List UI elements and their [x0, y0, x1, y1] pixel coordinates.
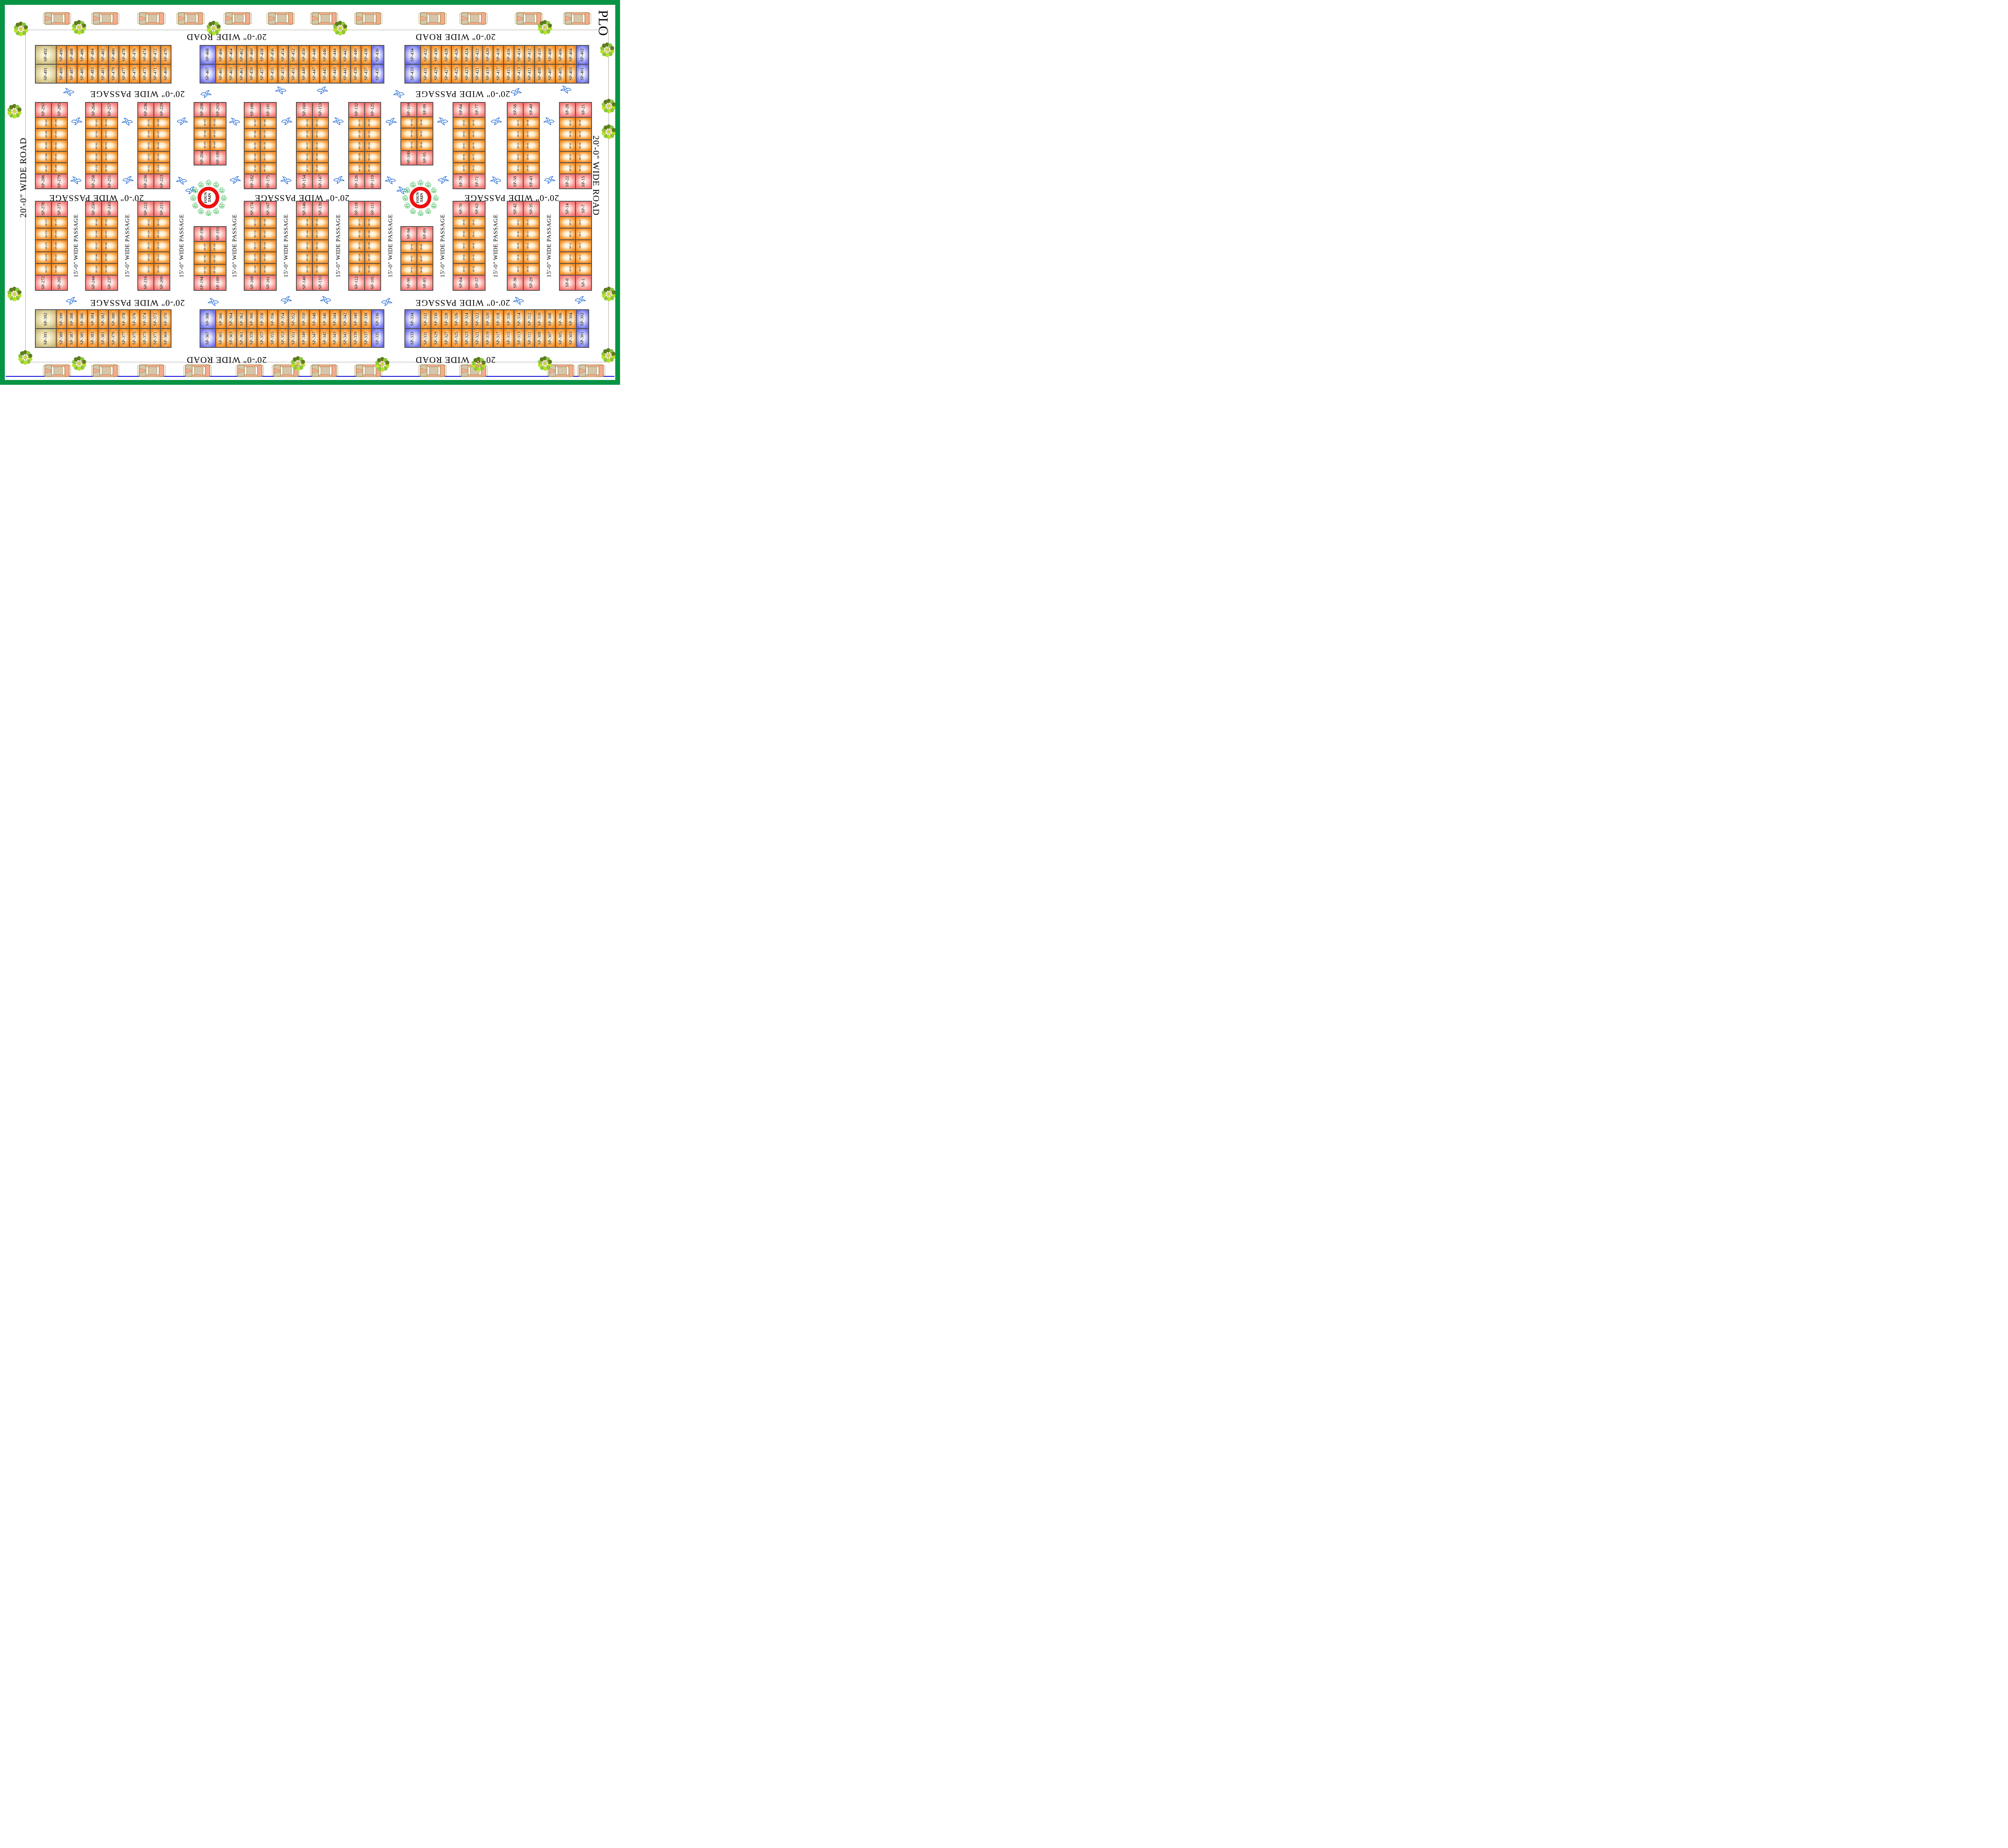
plot-column: SP-370SP-369: [161, 310, 171, 347]
plot-label: SP-150: [316, 142, 318, 149]
plot-column: SP-306SP-305: [555, 310, 566, 347]
plot-cell: SP-355: [267, 329, 278, 347]
plot-cell: SP-72: [469, 163, 485, 174]
plot-cell: SP-440: [351, 45, 361, 64]
fountain-foliage-icon: [192, 202, 198, 208]
plot-label: SP-365: [218, 331, 223, 344]
plot-label: SP-3: [579, 255, 582, 260]
plot-cell: SP-231: [138, 163, 154, 174]
plot-cell: SP-479: [108, 64, 119, 83]
bird-icon: [437, 117, 449, 125]
plot-label: SP-2: [579, 267, 582, 272]
plot-label: SP-56: [513, 104, 518, 115]
plot-label: SP-17: [579, 154, 582, 160]
plot-label: SP-127: [359, 165, 361, 172]
plot-cell: SP-337: [361, 329, 371, 347]
plot-column: SP-334SP-333: [405, 310, 420, 347]
plot-strip: SP-70SP-69SP-68SP-67SP-66SP-65SP-64SP-63…: [453, 201, 486, 291]
passage-label-vertical: 15'-0" WIDE PASSAGE: [124, 214, 131, 278]
plot-cell: SP-430: [431, 45, 441, 64]
plot-cell: SP-365: [216, 329, 226, 347]
plot-cell: SP-230: [138, 174, 154, 189]
plot-label: SP-68: [463, 231, 465, 237]
plot-label: SP-55: [517, 120, 520, 126]
plot-label: SP-435: [375, 67, 380, 80]
plot-cell: SP-335: [371, 329, 384, 347]
plot-cell: SP-206: [194, 128, 210, 139]
plot-label: SP-434: [410, 48, 415, 61]
plot-label: SP-217: [148, 266, 150, 273]
plot-cell: SP-70: [453, 201, 469, 216]
plot-cell: SP-203: [210, 102, 226, 117]
plot-label: SP-332: [423, 312, 428, 325]
plot-block: SP-334SP-333SP-332SP-331SP-330SP-329SP-3…: [404, 309, 589, 348]
plot-column: SP-236SP-235SP-234SP-233SP-232SP-231SP-2…: [138, 102, 154, 189]
plot-strip: SP-236SP-235SP-234SP-233SP-232SP-231SP-2…: [137, 102, 170, 189]
plot-cell: SP-453: [278, 64, 288, 83]
plot-cell: SP-51: [507, 163, 523, 174]
plot-column: SP-181SP-180SP-179SP-178SP-177SP-176SP-1…: [260, 102, 276, 189]
plot-column: SP-344SP-343: [330, 310, 340, 347]
plot-cell: SP-352: [288, 310, 299, 329]
plot-cell: SP-458: [257, 45, 267, 64]
plot-cell: SP-371: [150, 329, 161, 347]
plot-cell: SP-425: [451, 64, 462, 83]
tree-icon: [6, 286, 22, 302]
plot-cell: SP-112: [349, 275, 365, 290]
plot-cell: SP-344: [330, 310, 340, 329]
plot-cell: SP-229: [154, 102, 170, 117]
plot-column: SP-84SP-83SP-82SP-81SP-80SP-79SP-78: [453, 102, 469, 189]
plot-cell: SP-210: [154, 263, 170, 275]
plot-label: SP-20: [579, 120, 582, 126]
plot-label: SP-21: [582, 104, 586, 115]
plot-label: SP-173: [254, 219, 257, 226]
plot-cell: SP-475: [129, 64, 140, 83]
plot-cell: SP-34: [523, 216, 539, 228]
car-icon: [577, 364, 605, 378]
plot-label: SP-184: [254, 153, 257, 161]
plot-column: SP-257SP-256SP-255SP-254SP-253SP-252SP-2…: [102, 102, 118, 189]
plot-cell: SP-292: [35, 102, 51, 117]
plot-label: SP-455: [271, 67, 275, 80]
plot-cell: SP-172: [244, 228, 260, 240]
plot-cell: SP-96: [417, 139, 433, 151]
tree-icon: [332, 20, 348, 36]
plot-cell: SP-14: [559, 201, 575, 216]
plot-column: SP-458SP-457: [257, 45, 267, 83]
fountain-foliage-icon: [410, 181, 416, 188]
passage-label-vertical: 15'-0" WIDE PASSAGE: [546, 214, 553, 278]
plot-cell: SP-26: [559, 129, 575, 140]
passage-label-vertical: 15'-0" WIDE PASSAGE: [388, 214, 394, 278]
plot-label: SP-187: [254, 119, 257, 127]
plot-column: SP-346SP-345: [320, 310, 330, 347]
plot-label: SP-94: [407, 229, 411, 239]
plot-cell: SP-248: [86, 228, 102, 240]
plot-label: SP-308: [548, 312, 553, 325]
plot-cell: SP-214: [154, 216, 170, 228]
plot-label: SP-446: [322, 48, 327, 61]
plot-cell: SP-478: [119, 45, 129, 64]
plot-strip: SP-278SP-277SP-276SP-275SP-274SP-273SP-2…: [35, 201, 68, 291]
plot-cell: SP-259: [86, 163, 102, 174]
plot-column: SP-215SP-214SP-213SP-212SP-211SP-210SP-2…: [154, 201, 170, 290]
plot-label: SP-482: [101, 48, 106, 61]
plot-cell: SP-78: [453, 174, 469, 189]
plot-label: SP-124: [368, 119, 371, 127]
plot-cell: SP-429: [431, 64, 441, 83]
plot-label: SP-458: [260, 48, 265, 61]
plot-cell: SP-319: [483, 329, 493, 347]
plot-cell: SP-144: [296, 228, 312, 240]
plot-column: SP-352SP-351: [288, 310, 299, 347]
plot-label: SP-125: [371, 103, 375, 116]
plot-label: SP-170: [254, 254, 257, 261]
plot-cell: SP-225: [154, 151, 170, 163]
plot-label: SP-474: [143, 48, 147, 61]
plot-label: SP-431: [423, 67, 428, 80]
plot-cell: SP-250: [86, 201, 102, 216]
fountain-label: FOUN TAIN: [416, 192, 424, 203]
plot-cell: SP-281: [51, 151, 67, 163]
plot-cell: SP-368: [200, 310, 216, 329]
plot-cell: SP-127: [349, 163, 365, 174]
plot-column: SP-250SP-249SP-248SP-247SP-246SP-245SP-2…: [86, 201, 102, 290]
plot-cell: SP-339: [351, 329, 361, 347]
plot-cell: SP-148: [312, 163, 329, 174]
plot-cell: SP-147: [312, 174, 329, 189]
plot-cell: SP-23: [559, 163, 575, 174]
plot-column: SP-418SP-417: [493, 45, 504, 83]
plot-label: SP-179: [264, 131, 266, 138]
plot-cell: SP-484: [88, 45, 98, 64]
fountain-foliage-icon: [402, 194, 408, 201]
plot-label: SP-418: [496, 48, 500, 61]
plot-cell: SP-85: [417, 276, 433, 290]
plot-label: SP-116: [359, 231, 361, 237]
plot-block: SP-392SP-391SP-390SP-389SP-388SP-387SP-3…: [35, 309, 171, 348]
plot-label: SP-128: [359, 153, 361, 161]
plot-cell: SP-438: [361, 45, 371, 64]
plot-cell: SP-199: [210, 151, 226, 165]
plot-cell: SP-185: [244, 140, 260, 151]
plot-column: SP-63SP-62SP-61SP-60SP-59SP-58SP-57: [469, 201, 485, 290]
plot-cell: SP-54: [507, 129, 523, 140]
plot-label: SP-235: [148, 119, 150, 127]
plot-label: SP-99: [423, 104, 427, 115]
plot-cell: SP-447: [309, 64, 320, 83]
plot-label: SP-253: [105, 153, 108, 161]
passage-label: 20'-0" WIDE PASSAGE: [415, 89, 510, 99]
plot-cell: SP-379: [108, 329, 119, 347]
plot-strip: SP-94SP-93SP-92SP-91SP-90SP-89SP-88SP-87…: [400, 226, 433, 291]
plot-label: SP-272: [41, 276, 46, 289]
plot-label: SP-409: [538, 67, 542, 80]
plot-cell: SP-275: [35, 240, 51, 251]
bird-icon: [510, 88, 522, 96]
plot-cell: SP-284: [51, 117, 67, 129]
plot-label: SP-169: [254, 266, 257, 273]
plot-cell: SP-221: [138, 216, 154, 228]
plot-cell: SP-255: [102, 129, 118, 140]
plot-cell: SP-427: [441, 64, 452, 83]
plot-cell: SP-197: [194, 241, 210, 253]
plot-cell: SP-164: [260, 240, 276, 251]
plot-label: SP-30: [527, 266, 529, 272]
bird-icon: [574, 296, 586, 304]
plot-label: SP-320: [486, 312, 490, 325]
plot-cell: SP-474: [140, 45, 150, 64]
plot-cell: SP-470: [161, 45, 171, 64]
plot-label: SP-316: [506, 312, 511, 325]
plot-column: SP-340SP-339: [351, 310, 361, 347]
plot-strip: SP-198SP-197SP-196SP-195SP-194SP-193SP-1…: [194, 226, 227, 291]
plot-cell: SP-80: [453, 151, 469, 163]
plot-column: SP-49SP-48SP-47SP-46SP-45SP-44SP-43: [523, 102, 539, 189]
plot-label: SP-457: [260, 67, 265, 80]
plot-label: SP-37: [517, 266, 520, 272]
plot-label: SP-392: [44, 312, 48, 325]
plot-cell: SP-111: [365, 201, 381, 216]
plot-column: SP-436SP-435: [371, 45, 384, 83]
plot-cell: SP-136: [312, 240, 329, 251]
plot-cell: SP-9: [559, 263, 575, 275]
plot-label: SP-360: [250, 312, 254, 325]
plot-column: SP-488SP-487: [67, 45, 77, 83]
plot-cell: SP-422: [472, 45, 483, 64]
plot-label: SP-337: [364, 331, 369, 344]
plot-label: SP-429: [434, 67, 438, 80]
road-label: 20'-0" WIDE ROAD: [186, 32, 267, 42]
plot-label: SP-212: [157, 242, 160, 249]
plot-cell: SP-289: [35, 140, 51, 151]
plot-cell: SP-456: [267, 45, 278, 64]
plot-label: SP-28: [565, 104, 570, 115]
site-plan: PLO SP-492SP-491SP-490SP-489SP-488SP-487…: [0, 0, 620, 385]
plot-label: SP-148: [316, 165, 318, 172]
plot-cell: SP-328: [441, 310, 452, 329]
plot-cell: SP-375: [129, 329, 140, 347]
plot-label: SP-73: [473, 154, 475, 160]
plot-label: SP-327: [444, 331, 449, 344]
fountain-foliage-icon: [220, 194, 227, 201]
plot-block: SP-368SP-367SP-366SP-365SP-364SP-363SP-3…: [200, 309, 384, 348]
tree-icon: [206, 20, 222, 36]
plot-label: SP-425: [455, 67, 459, 80]
fountain-foliage-icon: [425, 208, 431, 214]
plot-cell: SP-196: [194, 253, 210, 264]
plot-cell: SP-366: [216, 310, 226, 329]
plot-label: SP-58: [473, 266, 475, 272]
plot-label: SP-374: [143, 312, 147, 325]
plot-cell: SP-487: [67, 64, 77, 83]
plot-label: SP-33: [527, 231, 529, 237]
plot-label: SP-152: [316, 119, 318, 127]
plot-cell: SP-448: [309, 45, 320, 64]
plot-label: SP-335: [375, 331, 380, 344]
bird-icon: [176, 117, 188, 125]
plot-cell: SP-405: [555, 64, 566, 83]
plot-cell: SP-258: [86, 174, 102, 189]
plot-cell: SP-166: [260, 216, 276, 228]
plot-label: SP-49: [529, 104, 534, 115]
plot-label: SP-120: [368, 165, 371, 172]
plot-label: SP-430: [434, 48, 438, 61]
plot-label: SP-236: [144, 103, 148, 116]
plot-label: SP-201: [214, 130, 216, 137]
plot-label: SP-50: [513, 176, 518, 187]
bird-icon: [543, 176, 555, 184]
plot-label: SP-449: [302, 67, 306, 80]
plot-label: SP-155: [306, 165, 309, 172]
plot-cell: SP-424: [462, 45, 472, 64]
plot-label: SP-210: [157, 266, 160, 273]
plot-label: SP-382: [101, 312, 106, 325]
plot-cell: SP-236: [138, 102, 154, 117]
plot-label: SP-267: [55, 254, 57, 261]
plot-label: SP-448: [312, 48, 316, 61]
plot-label: SP-224: [157, 165, 160, 172]
plot-column: SP-406SP-405: [555, 45, 566, 83]
plot-cell: SP-207: [194, 117, 210, 128]
plot-cell: SP-66: [453, 252, 469, 263]
plot-cell: SP-186: [244, 129, 260, 140]
plot-label: SP-264: [92, 103, 96, 116]
plot-label: SP-353: [281, 331, 286, 344]
plot-column: SP-99SP-98SP-97SP-96SP-95: [417, 102, 433, 165]
plot-cell: SP-157: [296, 140, 312, 151]
plot-label: SP-14: [565, 204, 570, 214]
plot-column: SP-146SP-145SP-144SP-143SP-142SP-141SP-1…: [296, 201, 312, 290]
plot-cell: SP-492: [35, 45, 56, 64]
plot-label: SP-186: [254, 131, 257, 138]
plot-cell: SP-272: [35, 275, 51, 290]
plot-cell: SP-58: [469, 263, 485, 275]
plot-cell: SP-411: [524, 64, 535, 83]
bird-icon: [280, 296, 292, 304]
plot-cell: SP-369: [161, 329, 171, 347]
plot-label: SP-165: [264, 231, 266, 238]
plot-label: SP-364: [229, 312, 233, 325]
plot-label: SP-311: [527, 332, 532, 345]
plot-label: SP-260: [96, 153, 98, 161]
corner-title: PLO: [595, 10, 610, 36]
plot-label: SP-89: [423, 229, 427, 239]
plot-label: SP-69: [463, 219, 465, 225]
plot-label: SP-341: [343, 331, 348, 344]
plot-column: SP-310SP-309: [535, 310, 545, 347]
plot-label: SP-78: [459, 176, 463, 187]
plot-cell: SP-198: [194, 227, 210, 241]
plot-cell: SP-374: [140, 310, 150, 329]
plot-label: SP-93: [411, 244, 413, 250]
plot-cell: SP-84: [453, 102, 469, 117]
plot-cell: SP-460: [247, 45, 257, 64]
fountain-foliage-icon: [417, 210, 424, 216]
plot-label: SP-207: [204, 119, 206, 126]
plot-label: SP-242: [105, 219, 108, 226]
bird-icon: [200, 90, 212, 98]
plot-cell: SP-331: [420, 329, 431, 347]
plot-label: SP-145: [306, 219, 309, 226]
plot-label: SP-70: [459, 204, 463, 214]
plot-cell: SP-421: [472, 64, 483, 83]
plot-label: SP-443: [333, 67, 337, 80]
plot-cell: SP-181: [260, 102, 276, 117]
plot-column: SP-188SP-187SP-186SP-185SP-184SP-183SP-1…: [244, 102, 260, 189]
plot-column: SP-422SP-421: [472, 45, 483, 83]
plot-column: SP-364SP-363: [226, 310, 237, 347]
plot-label: SP-215: [160, 202, 164, 215]
passage-label-vertical: 15'-0" WIDE PASSAGE: [283, 214, 290, 278]
plot-cell: SP-41: [507, 216, 523, 228]
passage-label-vertical: 15'-0" WIDE PASSAGE: [232, 214, 239, 278]
car-icon: [43, 12, 71, 25]
plot-cell: SP-190: [210, 264, 226, 276]
plot-label: SP-471: [153, 67, 158, 80]
tree-icon: [471, 356, 487, 372]
plot-label: SP-25: [569, 143, 572, 149]
passage-label: 20'-0" WIDE PASSAGE: [255, 193, 349, 203]
plot-column: SP-132SP-131SP-130SP-129SP-128SP-127SP-1…: [349, 102, 365, 189]
plot-label: SP-194: [200, 276, 204, 289]
plot-cell: SP-232: [138, 151, 154, 163]
plot-cell: SP-171: [244, 240, 260, 251]
plot-cell: SP-99: [417, 102, 433, 117]
plot-label: SP-36: [513, 278, 518, 288]
plot-cell: SP-348: [309, 310, 320, 329]
plot-label: SP-361: [239, 331, 244, 344]
plot-column: SP-432SP-431: [420, 45, 431, 83]
plot-cell: SP-95: [417, 151, 433, 165]
plot-label: SP-391: [44, 331, 48, 344]
plot-label: SP-419: [486, 67, 490, 80]
plot-cell: SP-443: [330, 64, 340, 83]
plot-column: SP-42SP-41SP-40SP-39SP-38SP-37SP-36: [507, 201, 523, 290]
plot-label: SP-51: [517, 165, 520, 172]
plot-column: SP-430SP-429: [431, 45, 441, 83]
plot-label: SP-424: [465, 48, 469, 61]
bird-icon: [513, 297, 525, 305]
plot-cell: SP-30: [523, 263, 539, 275]
plot-cell: SP-480: [108, 45, 119, 64]
plot-label: SP-230: [144, 175, 148, 188]
plot-cell: SP-341: [340, 329, 351, 347]
plot-label: SP-81: [463, 143, 465, 149]
plot-label: SP-439: [354, 67, 358, 80]
plot-cell: SP-131: [349, 117, 365, 129]
plot-cell: SP-160: [296, 102, 312, 117]
plot-cell: SP-245: [86, 263, 102, 275]
plot-label: SP-240: [105, 242, 108, 249]
plot-cell: SP-488: [67, 45, 77, 64]
plot-label: SP-22: [565, 176, 570, 187]
plot-label: SP-387: [70, 331, 74, 344]
plot-label: SP-175: [266, 175, 271, 188]
plot-label: SP-75: [473, 131, 475, 137]
plot-cell: SP-333: [405, 329, 420, 347]
plot-cell: SP-442: [340, 45, 351, 64]
car-icon: [418, 12, 447, 25]
plot-label: SP-60: [473, 243, 475, 249]
plot-cell: SP-441: [340, 64, 351, 83]
plot-label: SP-10: [569, 255, 572, 261]
plot-cell: SP-61: [469, 228, 485, 240]
plot-column: SP-424SP-423: [462, 45, 472, 83]
plot-label: SP-346: [322, 312, 327, 325]
plot-label: SP-149: [316, 153, 318, 161]
